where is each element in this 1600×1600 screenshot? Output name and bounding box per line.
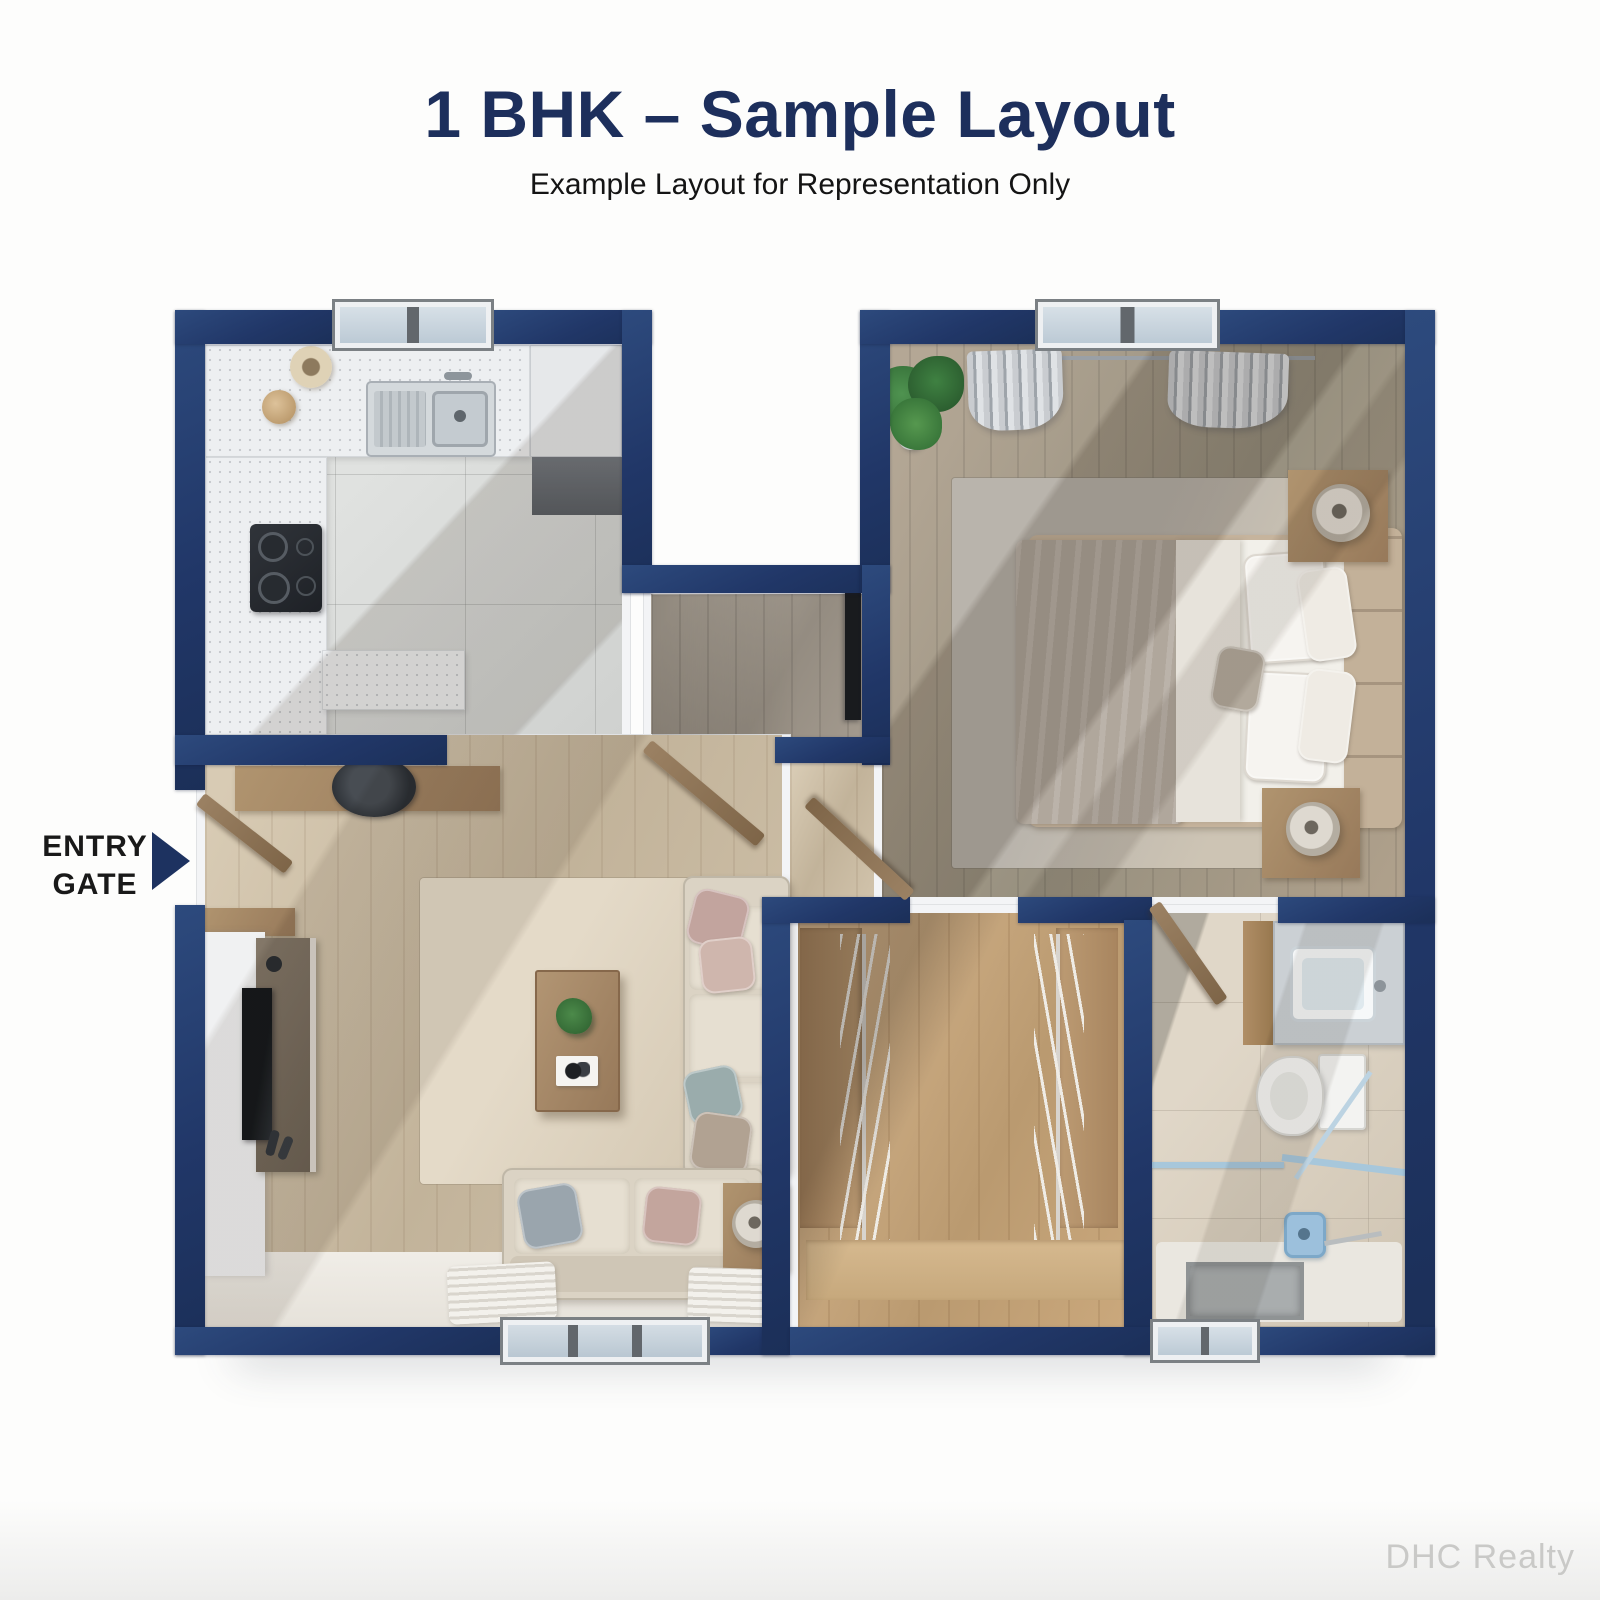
loveseat-pillow-gray bbox=[515, 1181, 585, 1251]
wall-nook-right bbox=[862, 565, 890, 765]
sink-drainboard bbox=[374, 391, 426, 447]
tv-speaker-knob bbox=[266, 956, 282, 972]
shower-glass-panel-1 bbox=[1152, 1162, 1284, 1168]
nightstand-lamp-top bbox=[1312, 484, 1370, 542]
living-curtain-pile-left bbox=[447, 1261, 558, 1325]
sink-bowl-inner bbox=[1302, 958, 1364, 1010]
sofa-pillow-taupe bbox=[688, 1110, 754, 1176]
wall-wardrobe-left bbox=[762, 897, 790, 1355]
wall-bathroom-top bbox=[1278, 897, 1435, 923]
tv-screen bbox=[242, 988, 272, 1140]
wardrobe-hanger-rail-left bbox=[840, 934, 890, 1240]
watermark: DHC Realty bbox=[1175, 1538, 1575, 1577]
shower-drain-tray bbox=[1186, 1262, 1304, 1320]
wall-nook-stub bbox=[775, 737, 890, 763]
stove-burner-1 bbox=[258, 532, 288, 562]
desk-chair bbox=[332, 757, 416, 817]
nook-tv-panel bbox=[845, 588, 861, 720]
wall-bottom-left bbox=[175, 1327, 507, 1355]
floor-plan-poster: 1 BHK – Sample Layout Example Layout for… bbox=[0, 0, 1600, 1600]
entry-arrow-icon bbox=[152, 832, 190, 890]
wall-bedroom-top-right bbox=[1213, 310, 1435, 344]
kitchen-peninsula-counter bbox=[322, 650, 465, 710]
loveseat-pillow-pink bbox=[641, 1185, 703, 1247]
bathroom-faucet bbox=[1374, 980, 1386, 992]
kitchen-appliance bbox=[532, 457, 622, 515]
wall-kitchen-top-left bbox=[175, 310, 337, 344]
bedroom-window bbox=[1038, 302, 1217, 348]
bedroom-plant-leaf-3 bbox=[890, 398, 942, 450]
sink-drain bbox=[454, 410, 466, 422]
bathroom-window bbox=[1153, 1322, 1257, 1360]
vanity-cabinet bbox=[1243, 921, 1273, 1045]
living-curtain-pile-right bbox=[687, 1267, 771, 1324]
wall-bottom-right bbox=[1253, 1327, 1435, 1355]
wardrobe-hanger-rail-right bbox=[1034, 934, 1084, 1240]
page-subtitle: Example Layout for Representation Only bbox=[0, 168, 1600, 202]
wall-living-left bbox=[175, 905, 205, 1355]
bedroom-curtain-left bbox=[967, 348, 1065, 431]
stove-burner-2 bbox=[258, 572, 290, 604]
kitchen-jar bbox=[262, 390, 296, 424]
wall-right-outer bbox=[1405, 310, 1435, 1355]
kitchen-tall-cabinet bbox=[530, 345, 622, 457]
kitchen-basket bbox=[290, 346, 332, 388]
wardrobe-bottom-shelf bbox=[806, 1240, 1124, 1300]
stove-burner-3 bbox=[296, 538, 314, 556]
nightstand-lamp-bottom bbox=[1286, 802, 1340, 856]
entry-gate-label: ENTRY GATE bbox=[35, 828, 155, 903]
utility-nook-floor bbox=[644, 587, 870, 745]
toilet-seat bbox=[1270, 1072, 1308, 1120]
shower-head bbox=[1298, 1228, 1310, 1240]
wall-nook-top bbox=[622, 565, 890, 593]
wall-bedroom-top-left bbox=[860, 310, 1042, 344]
kitchen-window bbox=[335, 302, 491, 348]
bed-blanket bbox=[1016, 540, 1184, 824]
entry-gate-line1: ENTRY bbox=[35, 828, 155, 866]
coffee-table bbox=[535, 970, 620, 1112]
stove-burner-4 bbox=[296, 576, 316, 596]
wall-bottom-wardrobe bbox=[790, 1327, 1157, 1355]
entry-gate-line2: GATE bbox=[35, 866, 155, 904]
book-cover-art bbox=[562, 1062, 590, 1080]
wall-wardrobe-right bbox=[1124, 920, 1152, 1355]
wall-kitchen-left bbox=[175, 310, 205, 790]
wall-wardrobe-top-left bbox=[762, 897, 910, 923]
coffee-table-plant bbox=[556, 998, 592, 1034]
wall-bedroom-left bbox=[860, 310, 890, 593]
sink-faucet bbox=[444, 372, 472, 380]
bedroom-curtain-right bbox=[1167, 350, 1290, 430]
living-room-window bbox=[503, 1320, 707, 1362]
page-title: 1 BHK – Sample Layout bbox=[0, 78, 1600, 151]
wall-kitchen-bottom bbox=[175, 735, 447, 765]
wall-kitchen-right bbox=[622, 310, 652, 593]
sofa-pillow-blush bbox=[697, 935, 756, 994]
